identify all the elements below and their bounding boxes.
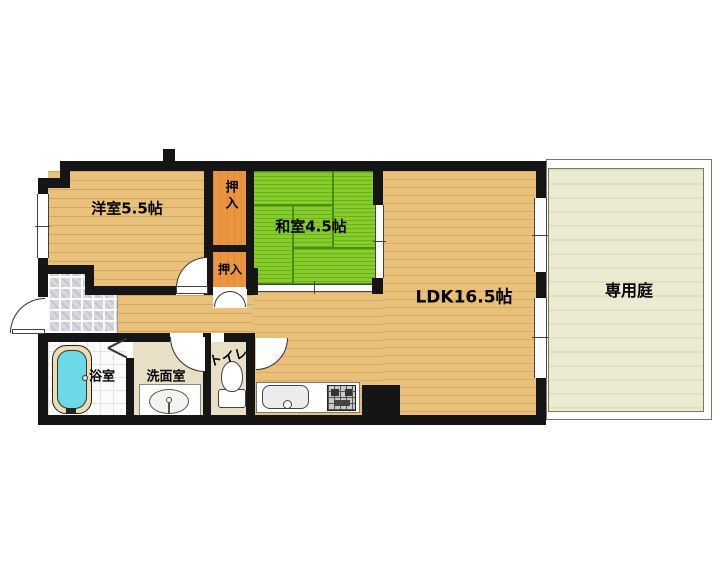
wall-right (536, 378, 546, 425)
toilet-door-opening (211, 334, 224, 342)
wall-bath-wash (126, 358, 134, 417)
stove-burner (345, 389, 352, 396)
wall-right (536, 272, 546, 298)
room-label-ldk: LDK16.5帖 (415, 283, 512, 308)
wall-left (38, 333, 48, 425)
stove-burner (334, 400, 350, 406)
bathtub-drain (66, 408, 76, 413)
wall-closet-japanese (246, 161, 254, 268)
window-tick (314, 281, 315, 294)
wall-bottom (38, 415, 546, 425)
room-label-garden: 専用庭 (605, 277, 653, 301)
kitchen-faucet (283, 400, 292, 409)
window-tick (373, 241, 386, 242)
wall-entrance (44, 265, 90, 274)
wall-wash-top (133, 333, 170, 342)
window-ldk-garden-2 (534, 298, 547, 378)
wall-closet-divider (213, 245, 246, 252)
wall-japanese-corner (246, 268, 258, 295)
wall-top-step (60, 161, 70, 188)
wall-left (38, 258, 48, 297)
room-label-closet-lower: 押入 (218, 261, 242, 278)
wall-bath-wash (126, 333, 134, 339)
wall-western-bottom (85, 286, 176, 295)
entrance-door-leaf (12, 329, 45, 334)
tatami-mat (293, 248, 377, 284)
washbasin-stem (168, 403, 170, 414)
wall-japanese-ldk (373, 161, 383, 205)
room-label-western: 洋室5.5帖 (91, 198, 163, 219)
floor-plan: 洋室5.5帖 押入 押入 和室4.5帖 LDK16.5帖 専用庭 浴室 洗面室 … (0, 0, 720, 576)
wall-left (38, 178, 48, 194)
wall-top (62, 161, 546, 171)
wall-toilet-ldk (246, 333, 255, 417)
sliding-opening-japanese-bottom (258, 284, 372, 292)
window-tick (532, 337, 548, 338)
entrance-tile-floor (48, 295, 118, 333)
entrance-door-arc (10, 298, 45, 333)
room-label-japanese: 和室4.5帖 (275, 216, 347, 237)
wall-pillar-stub (163, 149, 175, 163)
tatami-mat (253, 171, 333, 205)
kitchen-pillar (362, 385, 400, 417)
room-label-closet-upper: 押入 (221, 180, 240, 212)
window-tick (532, 235, 548, 236)
window-tick (35, 226, 50, 227)
room-label-washroom: 洗面室 (146, 366, 185, 385)
stove-burner (331, 389, 339, 396)
wall-japanese-ldk (372, 278, 383, 294)
bathtub-knob (82, 375, 88, 381)
room-label-bathroom: 浴室 (89, 366, 115, 385)
western-room-door-leaf (176, 286, 208, 294)
wall-right (536, 161, 546, 198)
